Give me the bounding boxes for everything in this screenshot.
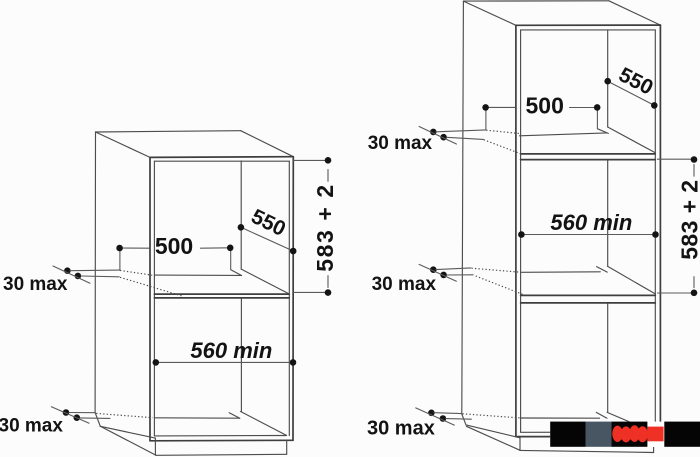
svg-text:30 max: 30 max [368,133,433,154]
svg-text:30 max: 30 max [367,417,435,439]
svg-text:30 max: 30 max [3,274,68,295]
svg-text:30 max: 30 max [0,415,63,436]
svg-text:583 + 2: 583 + 2 [676,180,700,260]
svg-text:583 + 2: 583 + 2 [312,183,338,272]
svg-text:500: 500 [155,233,193,259]
svg-text:500: 500 [526,93,564,119]
svg-text:560 min: 560 min [550,210,632,235]
svg-text:30 max: 30 max [372,274,437,295]
svg-text:560 min: 560 min [190,338,272,363]
